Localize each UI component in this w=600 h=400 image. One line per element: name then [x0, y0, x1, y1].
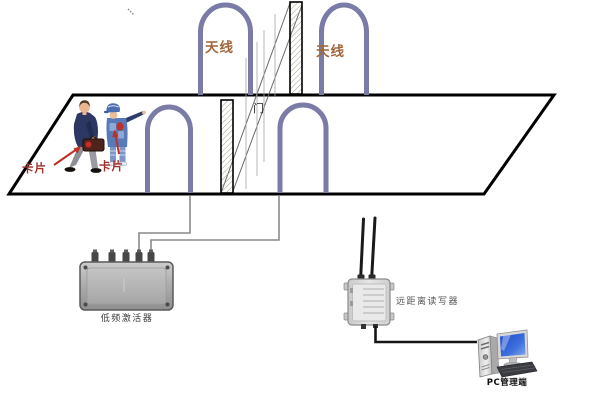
antenna-label-left: 天线 [205, 41, 234, 56]
pc-tower [478, 336, 499, 377]
reader-antenna-right [372, 218, 376, 281]
reader-label: 远距离读写器 [396, 298, 459, 308]
wire-right-antenna [151, 195, 279, 252]
door-post-front [221, 100, 233, 193]
reader-antenna-left [361, 219, 364, 281]
activator-label: 低频激活器 [80, 315, 174, 325]
diagram-canvas [0, 0, 600, 400]
pc-monitor [497, 330, 528, 368]
pc-label: PC管理端 [477, 379, 537, 388]
antenna-label-right: 天线 [316, 45, 345, 60]
card-in-briefcase [85, 141, 91, 147]
tick-mark [128, 9, 134, 15]
door-post-back [290, 2, 302, 94]
card-on-chest [117, 122, 124, 130]
card-label-right: 卡片 [99, 160, 124, 173]
wire-left-antenna [139, 195, 190, 252]
activator-connectors [92, 250, 155, 264]
reader-pc-cable [376, 326, 478, 342]
card-label-left: 卡片 [22, 162, 47, 175]
activator-device [80, 250, 173, 311]
pc-workstation [478, 330, 537, 377]
reader-device [344, 218, 394, 329]
door-label: 门 [253, 103, 264, 115]
rfid-system-diagram: 天线 天线 门 卡片 卡片 低频激活器 远距离读写器 PC管理端 [0, 0, 600, 400]
